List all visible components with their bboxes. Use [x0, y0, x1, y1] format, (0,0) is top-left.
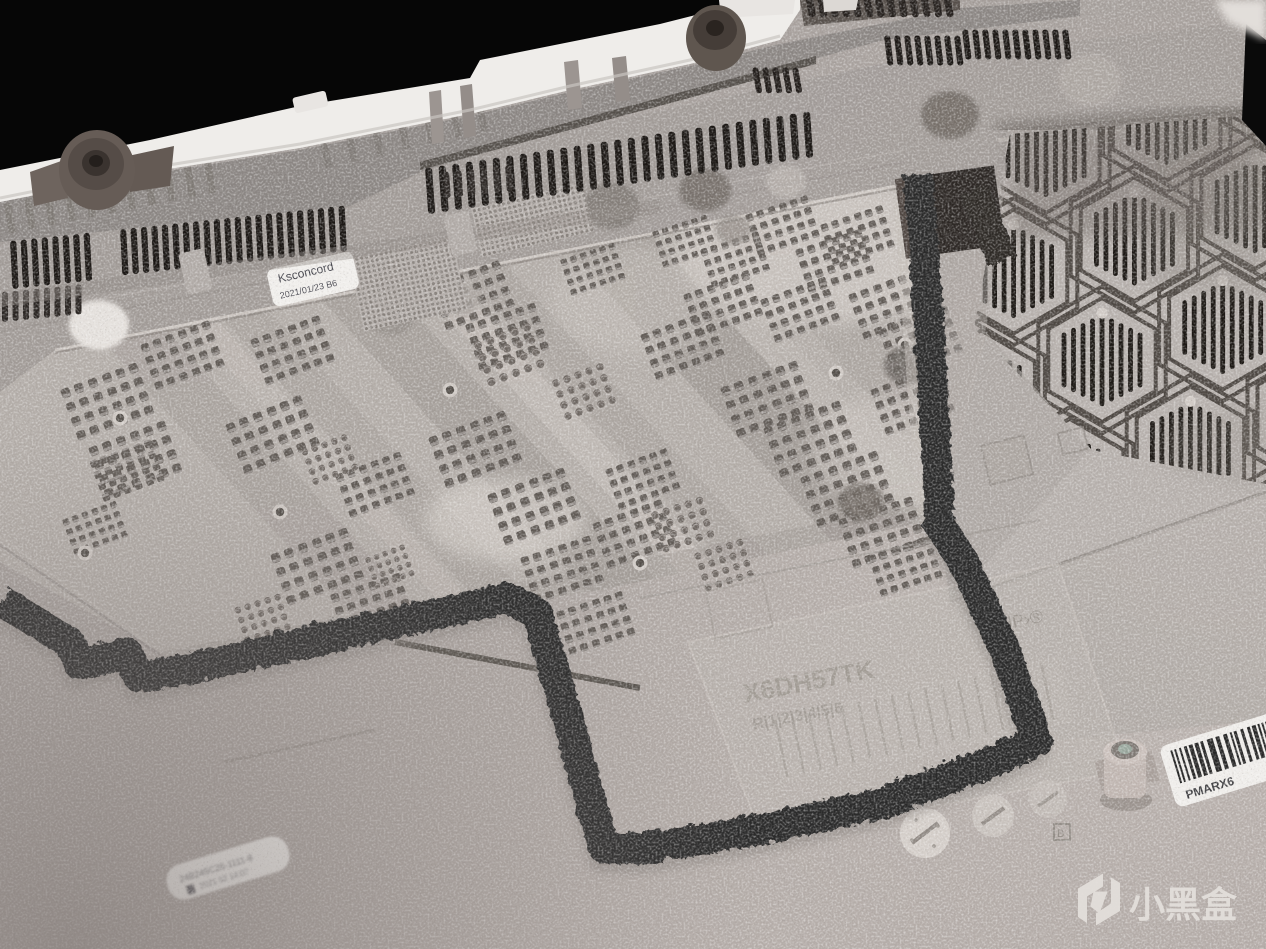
svg-text:小黑盒: 小黑盒	[1129, 884, 1238, 925]
